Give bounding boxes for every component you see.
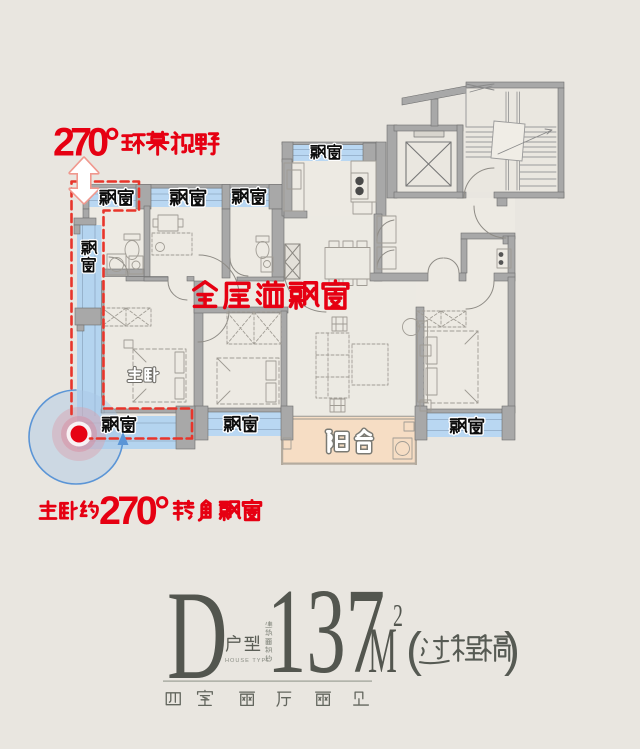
svg-text:(: ( [406, 624, 422, 677]
svg-text:270°: 270° [53, 121, 120, 165]
svg-text:D: D [167, 566, 228, 706]
svg-text:2: 2 [393, 597, 403, 633]
svg-text:): ) [504, 624, 520, 677]
svg-text:137: 137 [267, 565, 385, 699]
svg-text:270°: 270° [99, 489, 170, 533]
svg-text:HOUSE TYPE: HOUSE TYPE [225, 658, 271, 664]
